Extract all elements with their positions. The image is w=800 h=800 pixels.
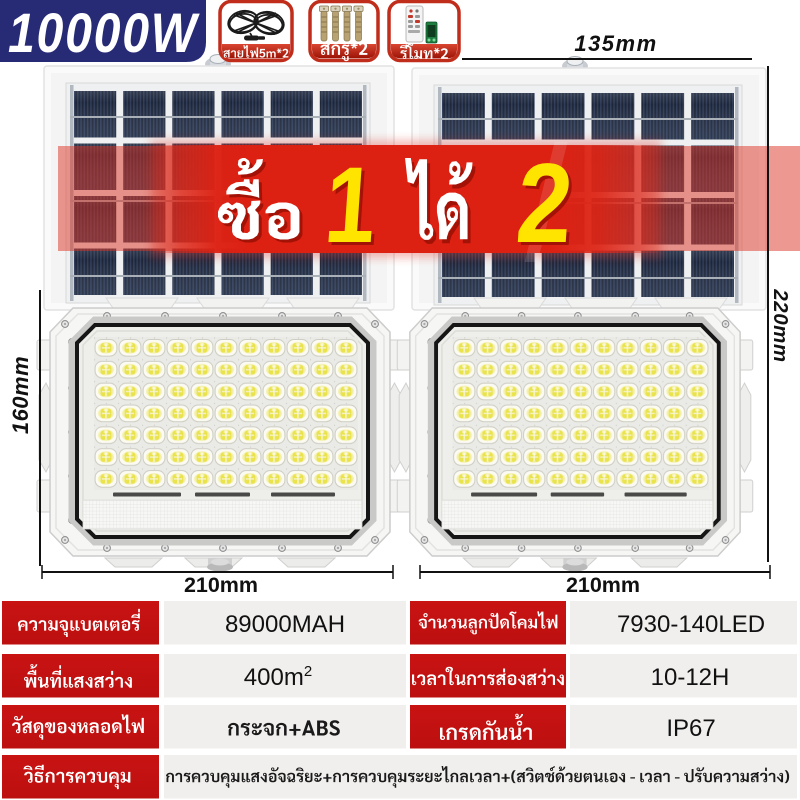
svg-text:IP67: IP67 (666, 715, 715, 742)
svg-text:210mm: 210mm (184, 573, 258, 597)
svg-text:7930-140LED: 7930-140LED (617, 611, 765, 638)
svg-text:400m2: 400m2 (244, 663, 312, 691)
svg-text:2: 2 (513, 140, 577, 266)
svg-text:210mm: 210mm (566, 573, 640, 597)
svg-text:1: 1 (321, 146, 380, 266)
svg-text:160mm: 160mm (8, 356, 33, 434)
svg-text:220mm: 220mm (769, 288, 792, 362)
svg-text:10-12H: 10-12H (651, 664, 730, 691)
svg-text:10000W: 10000W (8, 1, 200, 64)
svg-text:135mm: 135mm (574, 31, 657, 56)
svg-text:89000MAH: 89000MAH (225, 611, 345, 638)
